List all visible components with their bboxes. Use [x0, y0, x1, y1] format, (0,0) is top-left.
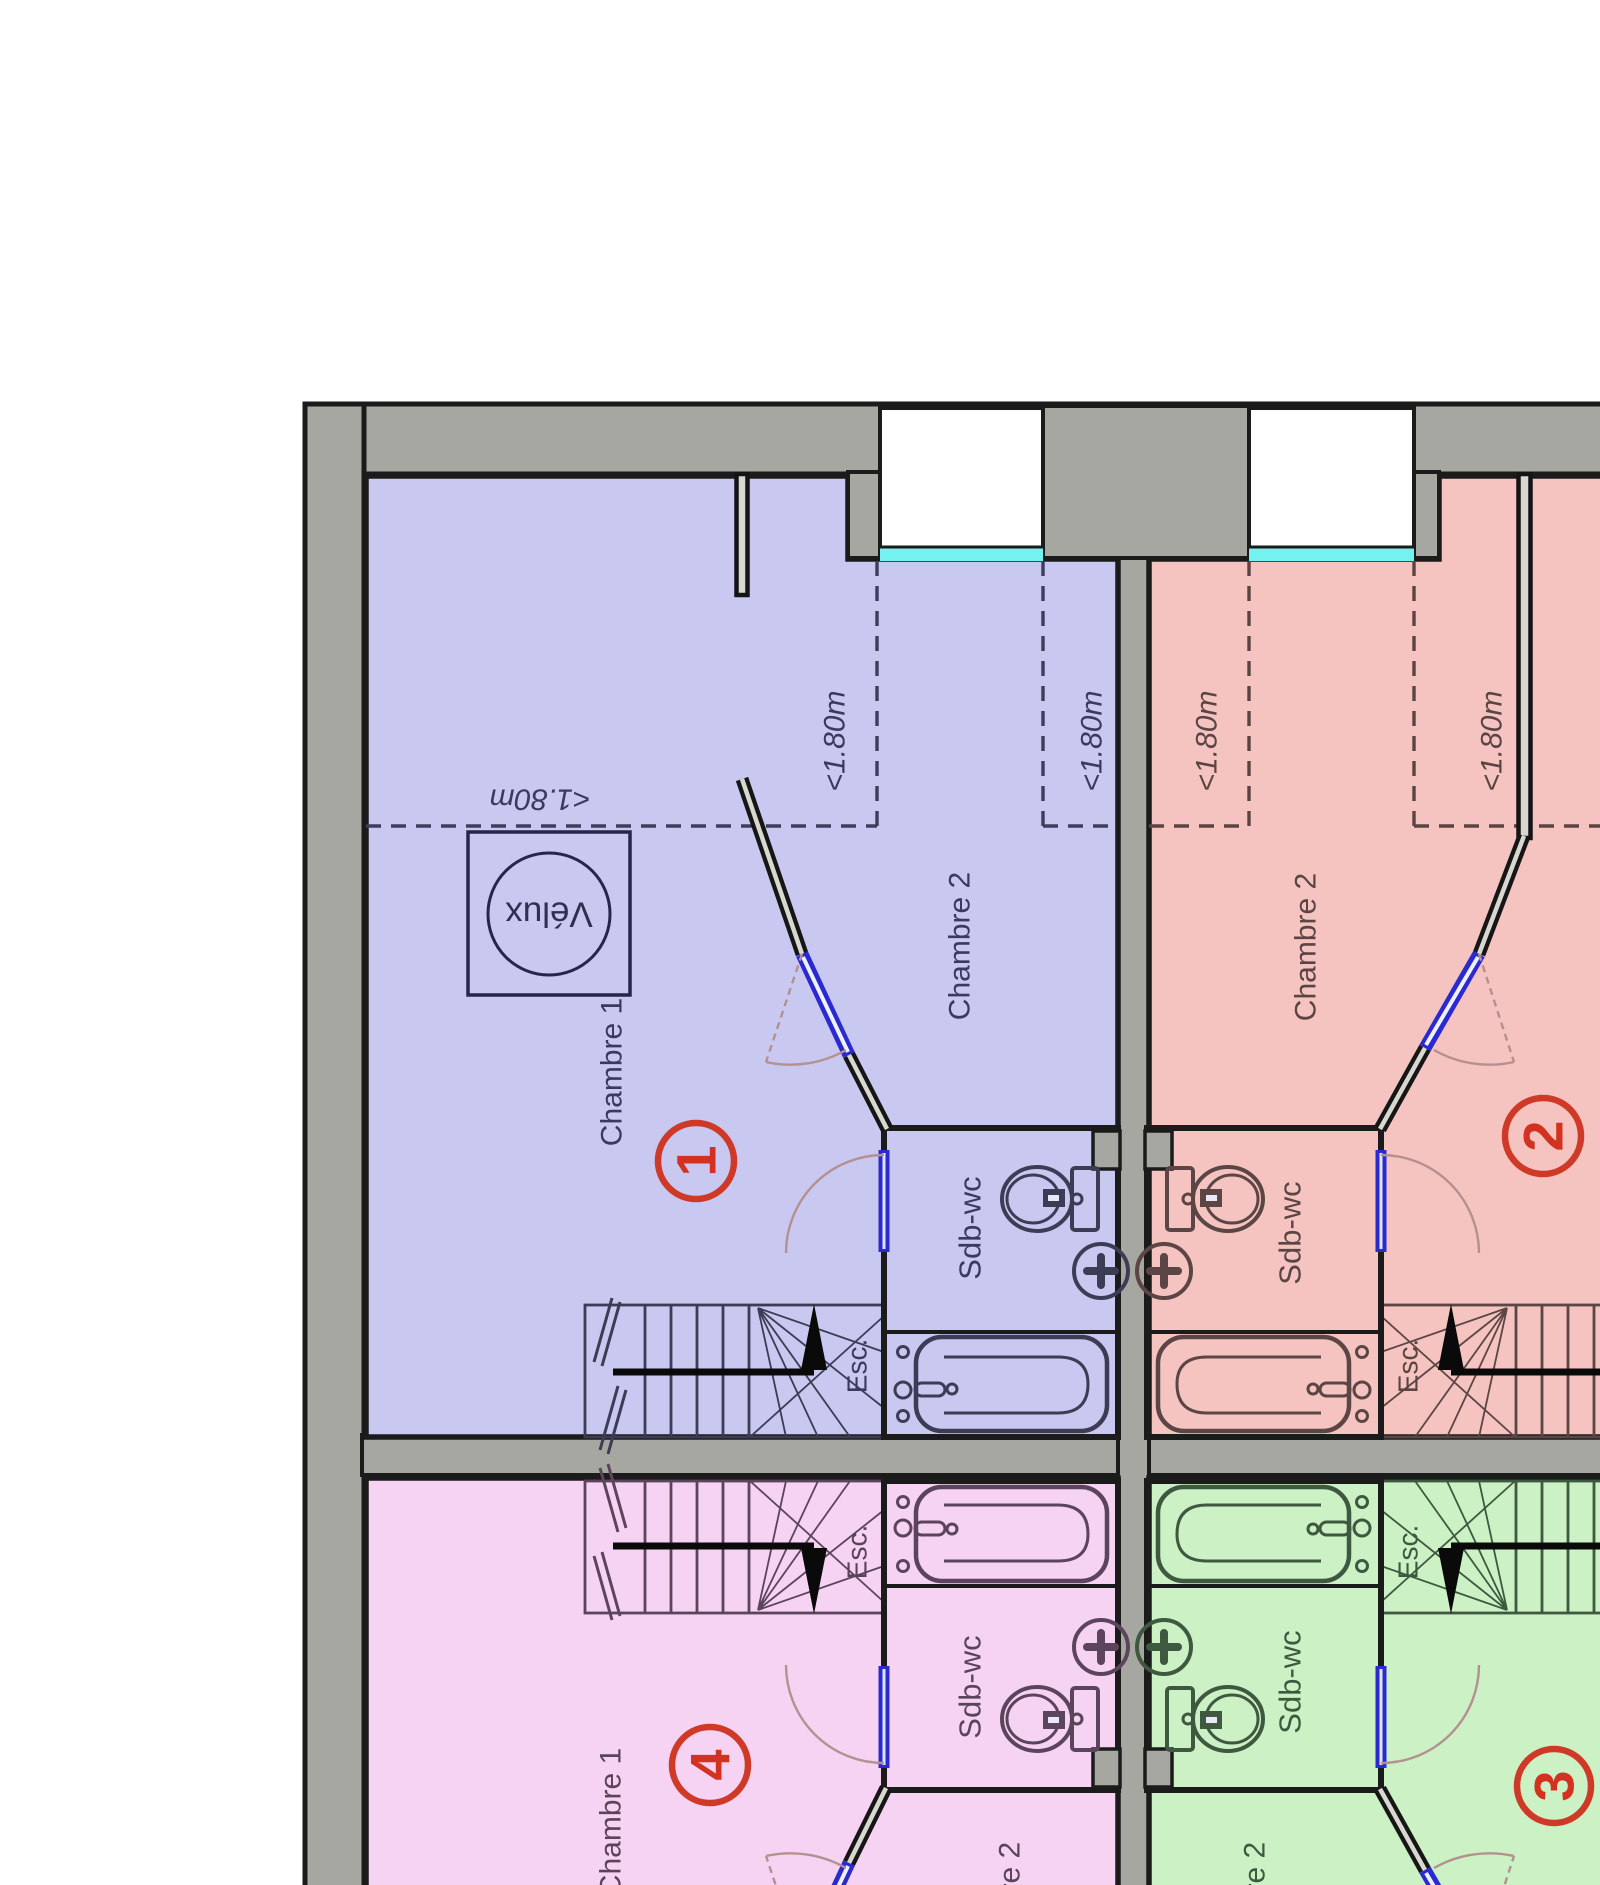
svg-text:Sdb-wc: Sdb-wc [953, 1176, 988, 1279]
svg-text:Esc.: Esc. [842, 1339, 873, 1393]
svg-text:Chambre 1: Chambre 1 [595, 1748, 628, 1885]
svg-text:<1.80m: <1.80m [1191, 691, 1224, 792]
svg-text:Esc.: Esc. [1393, 1339, 1424, 1393]
svg-text:<1.80m: <1.80m [1476, 691, 1509, 792]
svg-text:3: 3 [1523, 1770, 1586, 1801]
svg-text:1: 1 [665, 1145, 728, 1176]
svg-text:<1.80m: <1.80m [819, 691, 852, 792]
svg-text:Chambre 2: Chambre 2 [1290, 873, 1323, 1021]
svg-text:Esc.: Esc. [842, 1525, 873, 1579]
svg-text:Vélux: Vélux [505, 895, 593, 934]
svg-text:Chambre 1: Chambre 1 [596, 998, 629, 1146]
svg-text:Sdb-wc: Sdb-wc [1273, 1630, 1308, 1733]
svg-text:Chambre 2: Chambre 2 [1239, 1842, 1272, 1885]
svg-text:<1.80m: <1.80m [490, 783, 591, 816]
svg-text:Chambre 2: Chambre 2 [944, 872, 977, 1020]
svg-text:2: 2 [1512, 1120, 1575, 1151]
svg-text:4: 4 [679, 1749, 742, 1780]
svg-text:<1.80m: <1.80m [1076, 691, 1109, 792]
svg-text:Chambre 2: Chambre 2 [994, 1842, 1027, 1885]
svg-text:Esc.: Esc. [1393, 1525, 1424, 1579]
svg-text:Sdb-wc: Sdb-wc [953, 1635, 988, 1738]
svg-text:Sdb-wc: Sdb-wc [1273, 1181, 1308, 1284]
